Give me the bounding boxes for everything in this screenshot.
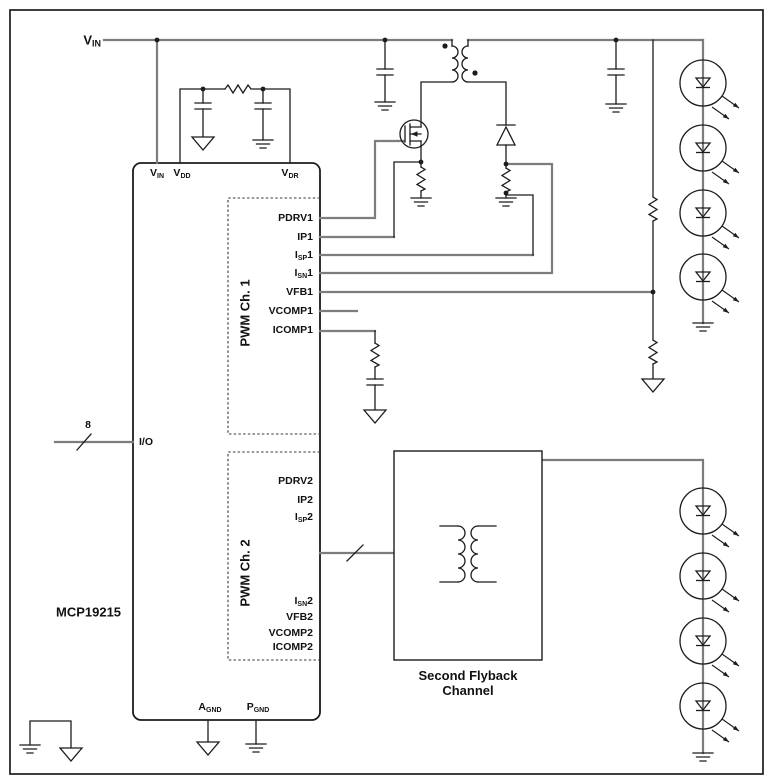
pin-label-ip1: IP1 — [297, 232, 313, 243]
led-1-3 — [680, 190, 739, 249]
pin-label-vcomp1: VCOMP1 — [269, 306, 313, 317]
pin-label-pdrv1: PDRV1 — [278, 213, 313, 224]
second-flyback-label: Second Flyback Channel — [419, 668, 518, 698]
led-1-2 — [680, 125, 739, 184]
led-1-4 — [680, 254, 739, 313]
earth-grounds — [20, 102, 713, 761]
pin-label-vdd: VDD — [173, 168, 190, 179]
schematic-figure: VIN VIN VDD VDR I/O 8 AGND PGND MCP19215… — [0, 0, 776, 778]
led-2-1 — [680, 488, 739, 547]
ground-tie-wire — [30, 721, 71, 748]
vin-net-label: VIN — [83, 34, 101, 47]
primary-mosfet — [400, 120, 428, 148]
second-flyback-block — [394, 451, 542, 660]
icomp1-resistor — [371, 343, 379, 367]
led-2-3 — [680, 618, 739, 677]
vdd-capacitor — [195, 103, 211, 109]
led-2-4 — [680, 683, 739, 742]
pin-label-agnd: AGND — [198, 702, 221, 713]
pin-label-pgnd: PGND — [247, 702, 270, 713]
main-transformer — [442, 43, 477, 82]
vdd-filter-resistor — [225, 85, 251, 93]
secondary-polarity-dot — [472, 70, 477, 75]
second-flyback-label-line1: Second Flyback — [419, 668, 518, 683]
pin-label-isp2: ISP2 — [295, 512, 313, 523]
pin-label-vdr: VDR — [281, 168, 298, 179]
mosfet-body-arrow — [411, 131, 418, 137]
pwm-ch2-label: PWM Ch. 2 — [239, 539, 252, 606]
pin-label-vin: VIN — [150, 168, 164, 179]
led-1-1 — [680, 60, 739, 119]
secondary-diode — [497, 125, 515, 145]
pin-label-isn1: ISN1 — [295, 268, 314, 279]
secondary-sense-resistor — [502, 168, 510, 192]
pin-label-vcomp2: VCOMP2 — [269, 628, 313, 639]
icomp1-capacitor — [367, 379, 383, 385]
schematic-canvas — [0, 0, 776, 778]
primary-polarity-dot — [442, 43, 447, 48]
input-capacitor — [377, 69, 393, 75]
figure-border — [10, 10, 763, 774]
led-2-2 — [680, 553, 739, 612]
component-wires — [30, 40, 653, 748]
io-bus-width-label: 8 — [85, 420, 91, 431]
pin-label-icomp2: ICOMP2 — [273, 642, 313, 653]
pwm-ch1-label: PWM Ch. 1 — [239, 279, 252, 346]
feedback-divider-bottom-resistor — [649, 340, 657, 364]
second-flyback-label-line2: Channel — [419, 683, 518, 698]
pin-label-isp1: ISP1 — [295, 250, 313, 261]
primary-sense-resistor — [417, 167, 425, 191]
pin-label-io: I/O — [139, 437, 153, 448]
pin-label-ip2: IP2 — [297, 495, 313, 506]
led-string-1 — [680, 60, 739, 313]
pin-label-icomp1: ICOMP1 — [273, 325, 313, 336]
pdrv1-wire — [320, 141, 404, 218]
output-capacitor — [608, 69, 624, 75]
led-string-2 — [680, 488, 739, 742]
pin-label-isn2: ISN2 — [295, 596, 314, 607]
chip-name-label: MCP19215 — [56, 606, 121, 619]
pin-label-vfb1: VFB1 — [286, 287, 313, 298]
vdr-capacitor — [255, 103, 271, 109]
pin-label-pdrv2: PDRV2 — [278, 476, 313, 487]
pin-label-vfb2: VFB2 — [286, 612, 313, 623]
led-string2-wire — [542, 460, 703, 753]
feedback-divider-top-resistor — [649, 197, 657, 221]
